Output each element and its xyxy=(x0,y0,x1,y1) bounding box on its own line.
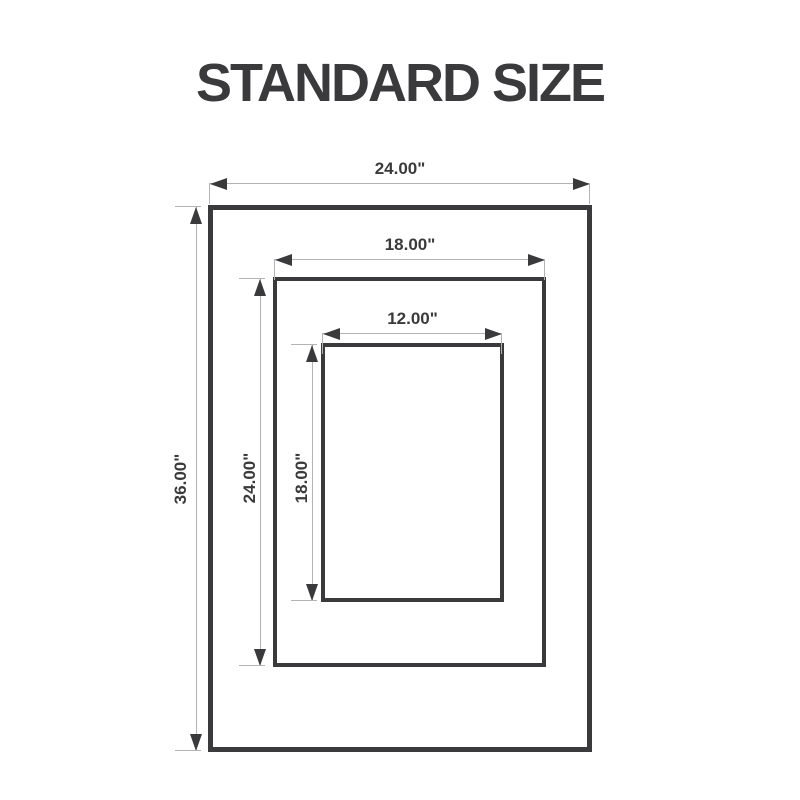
dimension-label-width-middle: 18.00" xyxy=(275,235,545,255)
extension-tick xyxy=(274,259,275,280)
extension-tick xyxy=(544,259,545,280)
arrowhead-right-icon xyxy=(528,254,545,266)
extension-tick xyxy=(175,750,201,751)
dimension-line xyxy=(323,333,502,334)
dimension-line xyxy=(312,345,313,601)
extension-tick xyxy=(501,333,502,354)
extension-tick xyxy=(322,333,323,354)
extension-tick xyxy=(175,206,201,207)
arrowhead-left-icon xyxy=(323,328,340,340)
arrowhead-down-icon xyxy=(190,734,202,751)
extension-tick xyxy=(291,344,317,345)
dimension-label-width-outer: 24.00" xyxy=(210,159,590,179)
arrowhead-right-icon xyxy=(485,328,502,340)
dimension-line xyxy=(260,279,261,666)
arrowhead-right-icon xyxy=(573,178,590,190)
page-title: STANDARD SIZE xyxy=(0,52,800,114)
extension-tick xyxy=(589,183,590,204)
extension-tick xyxy=(239,665,265,666)
dimension-label-height-outer: 36.00" xyxy=(171,429,191,529)
dimension-line xyxy=(210,183,590,184)
arrowhead-left-icon xyxy=(275,254,292,266)
standard-size-diagram: STANDARD SIZE 24.00" 18.00" 12.00" xyxy=(0,0,800,800)
arrowhead-down-icon xyxy=(254,649,266,666)
arrowhead-down-icon xyxy=(306,584,318,601)
arrowhead-up-icon xyxy=(190,207,202,224)
arrowhead-left-icon xyxy=(210,178,227,190)
arrowhead-up-icon xyxy=(254,279,266,296)
dimension-label-height-inner: 18.00" xyxy=(292,428,312,528)
extension-tick xyxy=(239,278,265,279)
arrowhead-up-icon xyxy=(306,345,318,362)
dimension-line xyxy=(275,259,545,260)
frame-12x18 xyxy=(321,343,504,602)
dimension-line xyxy=(196,207,197,751)
dimension-label-width-inner: 12.00" xyxy=(323,309,502,329)
extension-tick xyxy=(209,183,210,204)
dimension-label-height-middle: 24.00" xyxy=(240,428,260,528)
extension-tick xyxy=(291,600,317,601)
